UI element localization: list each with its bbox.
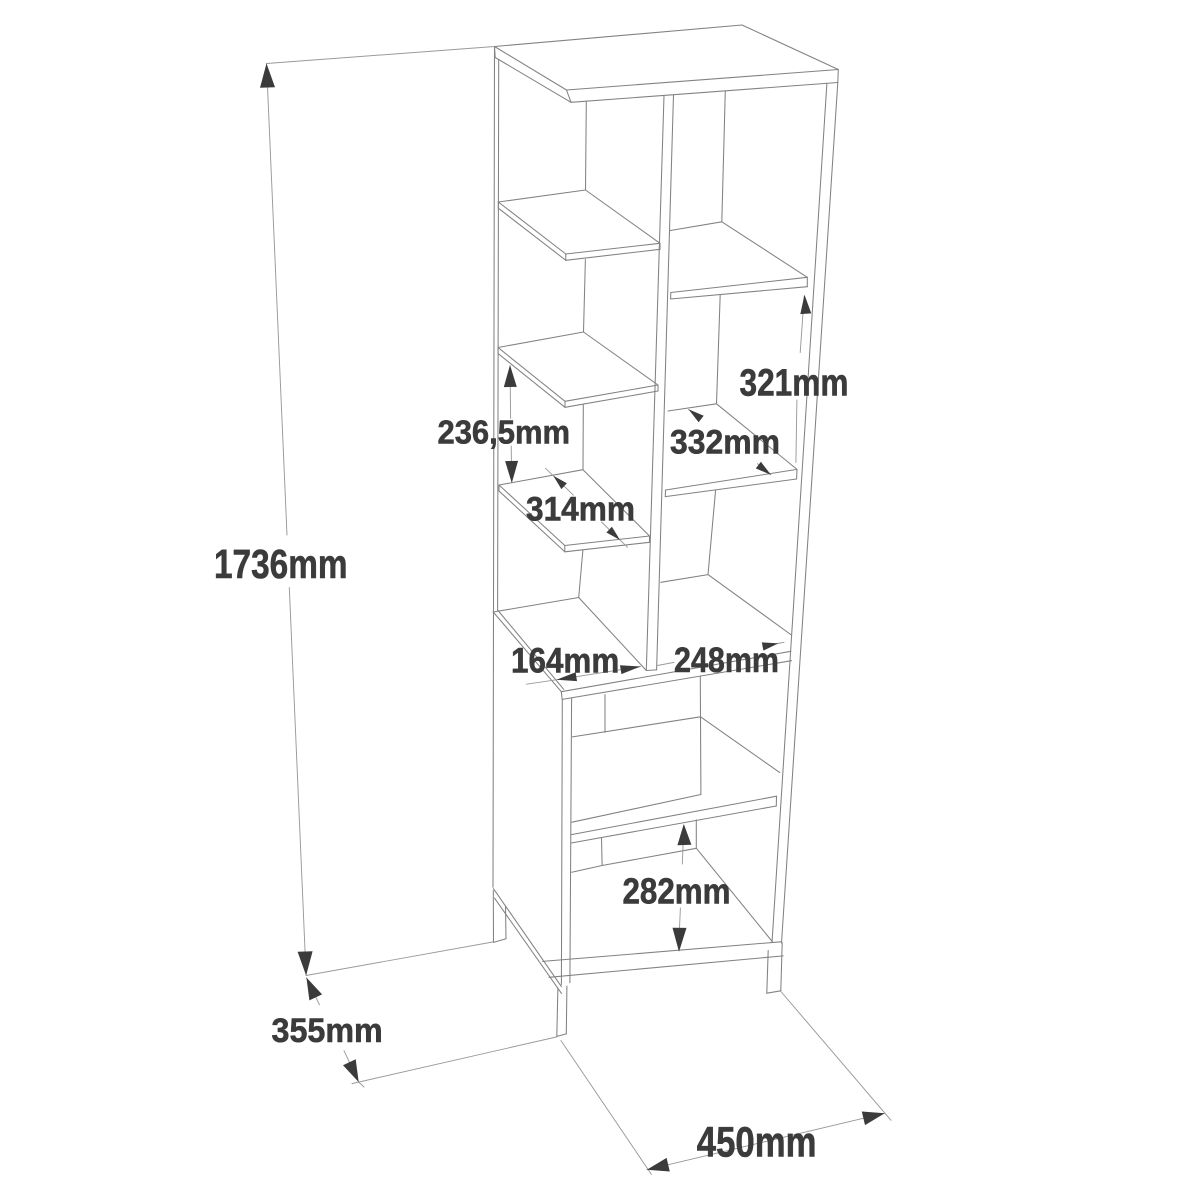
svg-text:1736mm: 1736mm [214,541,348,587]
svg-text:236,5mm: 236,5mm [438,414,571,451]
svg-text:450mm: 450mm [697,1119,817,1167]
svg-text:248mm: 248mm [674,641,779,680]
svg-text:355mm: 355mm [272,1012,383,1050]
svg-text:314mm: 314mm [526,491,635,529]
svg-text:164mm: 164mm [511,641,619,681]
svg-text:321mm: 321mm [740,363,849,405]
svg-text:282mm: 282mm [623,871,731,912]
svg-text:332mm: 332mm [670,424,780,462]
